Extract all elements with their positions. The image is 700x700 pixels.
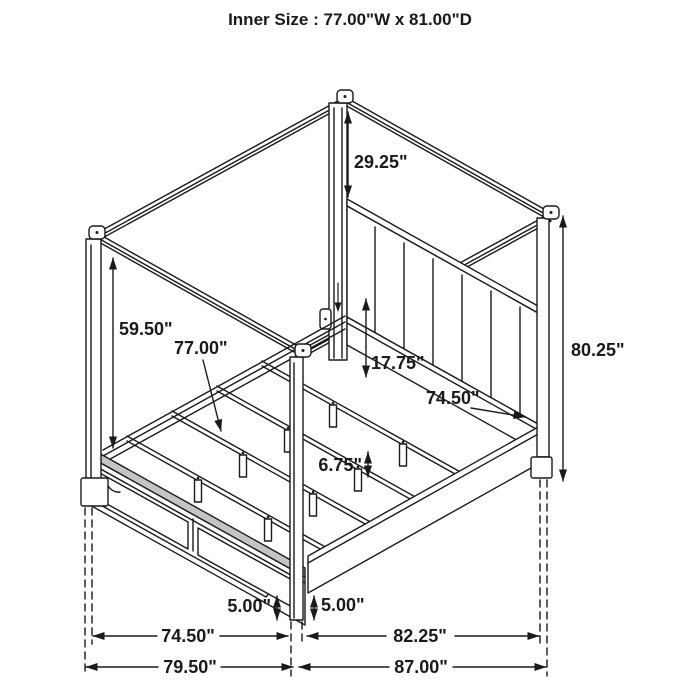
back-post bbox=[320, 103, 347, 360]
dim-slat-leg: 6.75" bbox=[318, 455, 362, 475]
front-post bbox=[290, 357, 303, 620]
dim-clearance-left: 5.00" bbox=[227, 596, 271, 616]
footboard bbox=[88, 447, 305, 625]
dim-slat-inner-width: 77.00" bbox=[174, 338, 228, 358]
bed-line-drawing: Inner Size : 77.00"W x 81.00"D bbox=[0, 0, 700, 700]
dim-side-rail: 74.50" bbox=[426, 388, 480, 408]
page-title: Inner Size : 77.00"W x 81.00"D bbox=[228, 10, 472, 29]
dim-footboard-to-canopy: 59.50" bbox=[119, 319, 173, 339]
dim-side-depth: 82.25" bbox=[393, 626, 447, 646]
dim-overall-width: 79.50" bbox=[163, 657, 217, 677]
dim-overall-depth: 87.00" bbox=[394, 657, 448, 677]
dim-headboard-rail: 17.75" bbox=[371, 353, 425, 373]
leader-slat-width bbox=[203, 360, 221, 431]
right-post-foot bbox=[531, 457, 552, 478]
dim-overall-height: 80.25" bbox=[571, 340, 625, 360]
dim-footboard-width: 74.50" bbox=[161, 626, 215, 646]
left-post-foot bbox=[81, 478, 108, 506]
dimension-diagram: Inner Size : 77.00"W x 81.00"D bbox=[0, 0, 700, 700]
dim-clearance-right: 5.00" bbox=[321, 595, 365, 615]
dim-canopy-to-headboard: 29.25" bbox=[354, 152, 408, 172]
